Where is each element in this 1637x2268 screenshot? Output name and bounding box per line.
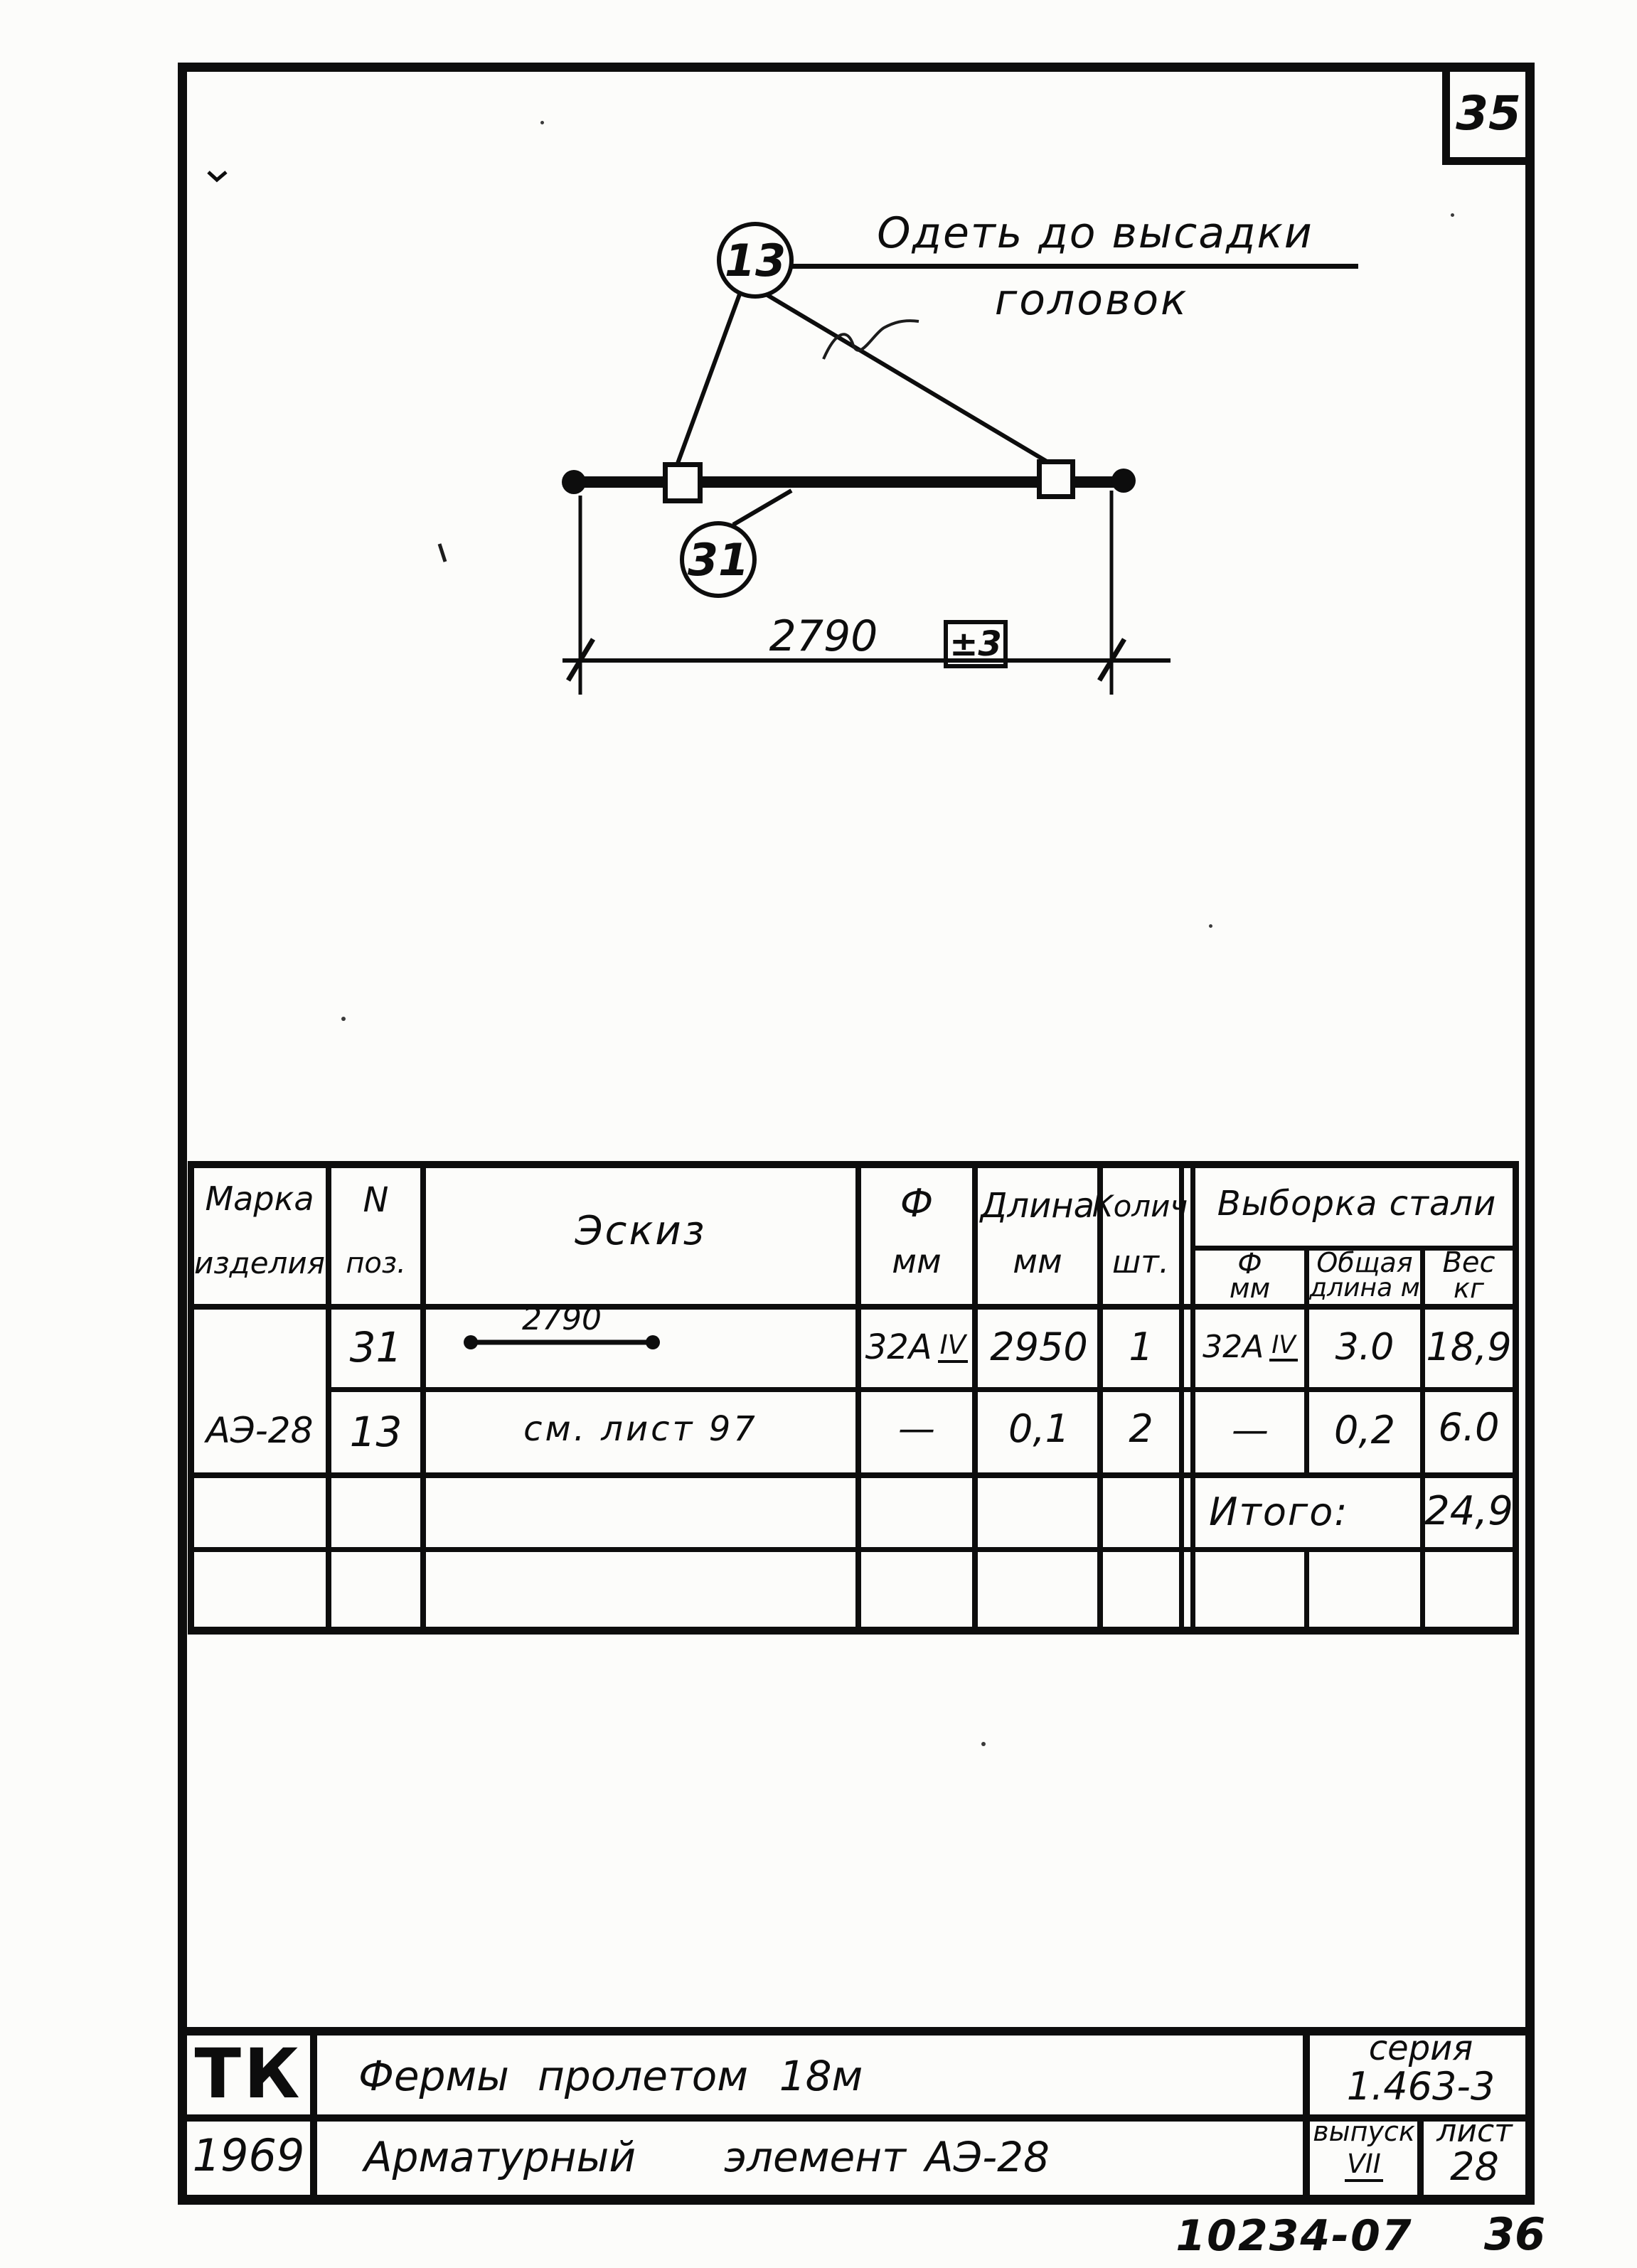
hdr-qty-1: Колич — [1094, 1186, 1186, 1227]
scan-speck — [540, 121, 544, 124]
clamp-left — [663, 462, 703, 503]
tb-title1-word3: 18м — [769, 2042, 873, 2110]
row13-sel-len: 0,2 — [1309, 1395, 1420, 1466]
frame-right — [1525, 63, 1535, 2205]
row13-sel-dia: — — [1194, 1395, 1306, 1466]
tb-sheet-label: лист — [1424, 2117, 1525, 2146]
hdr-dia-2: мм — [861, 1241, 972, 1282]
leader-line-bar — [733, 491, 791, 525]
row31-dia-class: IV — [938, 1332, 969, 1362]
row31-dia: 32АIV — [858, 1312, 975, 1383]
pencil-squiggle — [823, 321, 919, 359]
tb-issue-value: VII — [1311, 2144, 1417, 2188]
table-v-pos — [420, 1161, 426, 1635]
callout-31: 31 — [680, 521, 757, 598]
tb-top — [178, 2027, 1535, 2036]
leader-line-left — [676, 294, 740, 467]
hdr-sel-wt-1: Вес — [1425, 1250, 1513, 1275]
tb-series-label: серия — [1314, 2031, 1527, 2066]
sketch-bar-dot-left — [464, 1335, 478, 1349]
frame-top — [178, 63, 1535, 72]
row13-sketch-note: см. лист 97 — [426, 1392, 855, 1466]
table-v-seldia-1 — [1304, 1246, 1309, 1475]
row31-sel-dia-class: IV — [1269, 1333, 1298, 1362]
row31-qty: 1 — [1100, 1312, 1182, 1383]
row13-mark: АЭ-28 — [193, 1392, 326, 1469]
check-mark — [208, 172, 226, 180]
tb-issue-label: выпуск — [1311, 2117, 1417, 2146]
tb-title2-word2: элемент — [724, 2122, 906, 2193]
table-v-sellen — [1420, 1246, 1425, 1635]
hdr-len-2: мм — [975, 1241, 1100, 1282]
table-bottom — [188, 1627, 1518, 1635]
row13-len: 0,1 — [978, 1394, 1100, 1465]
footer-page: 36 — [1472, 2207, 1557, 2262]
frame-bottom — [178, 2195, 1535, 2205]
rebar-head-left — [562, 470, 586, 494]
hdr-mark-1: Марка — [193, 1177, 326, 1221]
hdr-dia-1: Ф — [861, 1180, 972, 1227]
note-underline — [792, 264, 1358, 269]
table-total-bottom — [188, 1547, 1518, 1552]
hdr-sel-wt-2: кг — [1425, 1275, 1513, 1301]
row13-wt: 6.0 — [1425, 1392, 1513, 1463]
hdr-selection: Выборка стали — [1195, 1179, 1518, 1229]
table-subheader-line — [1190, 1246, 1518, 1251]
row31-wt: 18,9 — [1425, 1312, 1513, 1383]
badge-bottom-line — [1442, 157, 1535, 165]
row13-dia: — — [858, 1394, 975, 1465]
total-label: Итого: — [1209, 1482, 1408, 1543]
total-value: 24,9 — [1425, 1480, 1513, 1543]
hdr-sketch: Эскиз — [426, 1203, 855, 1260]
tb-issue-roman: VII — [1345, 2151, 1383, 2181]
table-v-len — [1097, 1161, 1103, 1635]
row13-pos: 13 — [331, 1394, 420, 1470]
clamp-right — [1037, 459, 1075, 499]
drawing-sheet: 35 13 31 Одеть до высадки головок — [0, 0, 1637, 2268]
rebar-head-right — [1111, 469, 1136, 493]
tb-v-right — [1303, 2027, 1310, 2198]
row31-sel-len: 3.0 — [1309, 1312, 1420, 1383]
table-v-sketch — [855, 1161, 861, 1635]
hdr-mark-2: изделия — [193, 1243, 326, 1284]
scan-speck — [1209, 924, 1212, 928]
table-row31-bottom — [326, 1387, 1518, 1392]
dim-value: 2790 — [759, 613, 887, 660]
tb-title1-word2: пролетом — [553, 2042, 732, 2110]
table-row13-bottom — [188, 1472, 1518, 1478]
tb-sheet-value: 28 — [1424, 2144, 1525, 2190]
table-top — [188, 1161, 1518, 1168]
table-v-dia — [972, 1161, 978, 1635]
dim-tolerance-box: ±3 — [944, 620, 1008, 668]
note-line2: головок — [988, 274, 1195, 326]
tb-title2-word1: Арматурный — [347, 2122, 653, 2193]
row31-dia-grade: 32А — [865, 1330, 932, 1364]
hdr-qty-2: шт. — [1097, 1243, 1184, 1283]
badge-left-line — [1442, 68, 1450, 165]
hdr-sel-len-2: длина м — [1309, 1275, 1420, 1301]
table-v-seldia-2 — [1304, 1547, 1309, 1635]
table-v-right — [1513, 1161, 1519, 1635]
hdr-sel-dia-2: мм — [1195, 1275, 1304, 1301]
hdr-len-1: Длина — [975, 1184, 1100, 1228]
tb-v-left — [310, 2027, 317, 2198]
diagram-canvas — [0, 0, 1637, 2268]
table-v-mark — [326, 1161, 331, 1635]
tb-title2-word3: АЭ-28 — [915, 2122, 1060, 2193]
table-v-qty-a — [1179, 1161, 1184, 1635]
pencil-tick — [439, 544, 445, 562]
footer-code: 10234-07 — [1152, 2208, 1436, 2264]
row31-len: 2950 — [978, 1312, 1100, 1383]
tb-year: 1969 — [187, 2123, 310, 2188]
table-header-bottom — [188, 1304, 1518, 1310]
scan-speck — [1451, 213, 1454, 217]
row13-qty: 2 — [1100, 1394, 1182, 1465]
hdr-sel-len-1: Общая — [1309, 1250, 1420, 1275]
hdr-pos-1: N — [331, 1179, 420, 1221]
hdr-pos-2: поз. — [331, 1244, 420, 1283]
tb-mid — [178, 2114, 1535, 2122]
table-v-left — [188, 1161, 194, 1635]
scan-speck — [981, 1742, 986, 1746]
scan-speck — [341, 1017, 346, 1021]
tb-org: ТК — [187, 2036, 310, 2112]
note-line1: Одеть до высадки — [818, 205, 1372, 262]
table-v-qty-b — [1190, 1161, 1195, 1635]
row31-sel-dia: 32АIV — [1194, 1312, 1306, 1383]
tb-series-value: 1.463-3 — [1314, 2065, 1527, 2109]
tb-v-sheet — [1417, 2114, 1424, 2198]
callout-13: 13 — [717, 222, 794, 299]
page-number-badge: 35 — [1450, 74, 1527, 154]
frame-left — [178, 63, 187, 2205]
row31-pos: 31 — [331, 1312, 420, 1383]
tb-title1-word1: Фермы — [356, 2042, 512, 2110]
row31-sel-dia-grade: 32А — [1203, 1332, 1264, 1363]
sketch-bar-dot-right — [646, 1335, 660, 1349]
